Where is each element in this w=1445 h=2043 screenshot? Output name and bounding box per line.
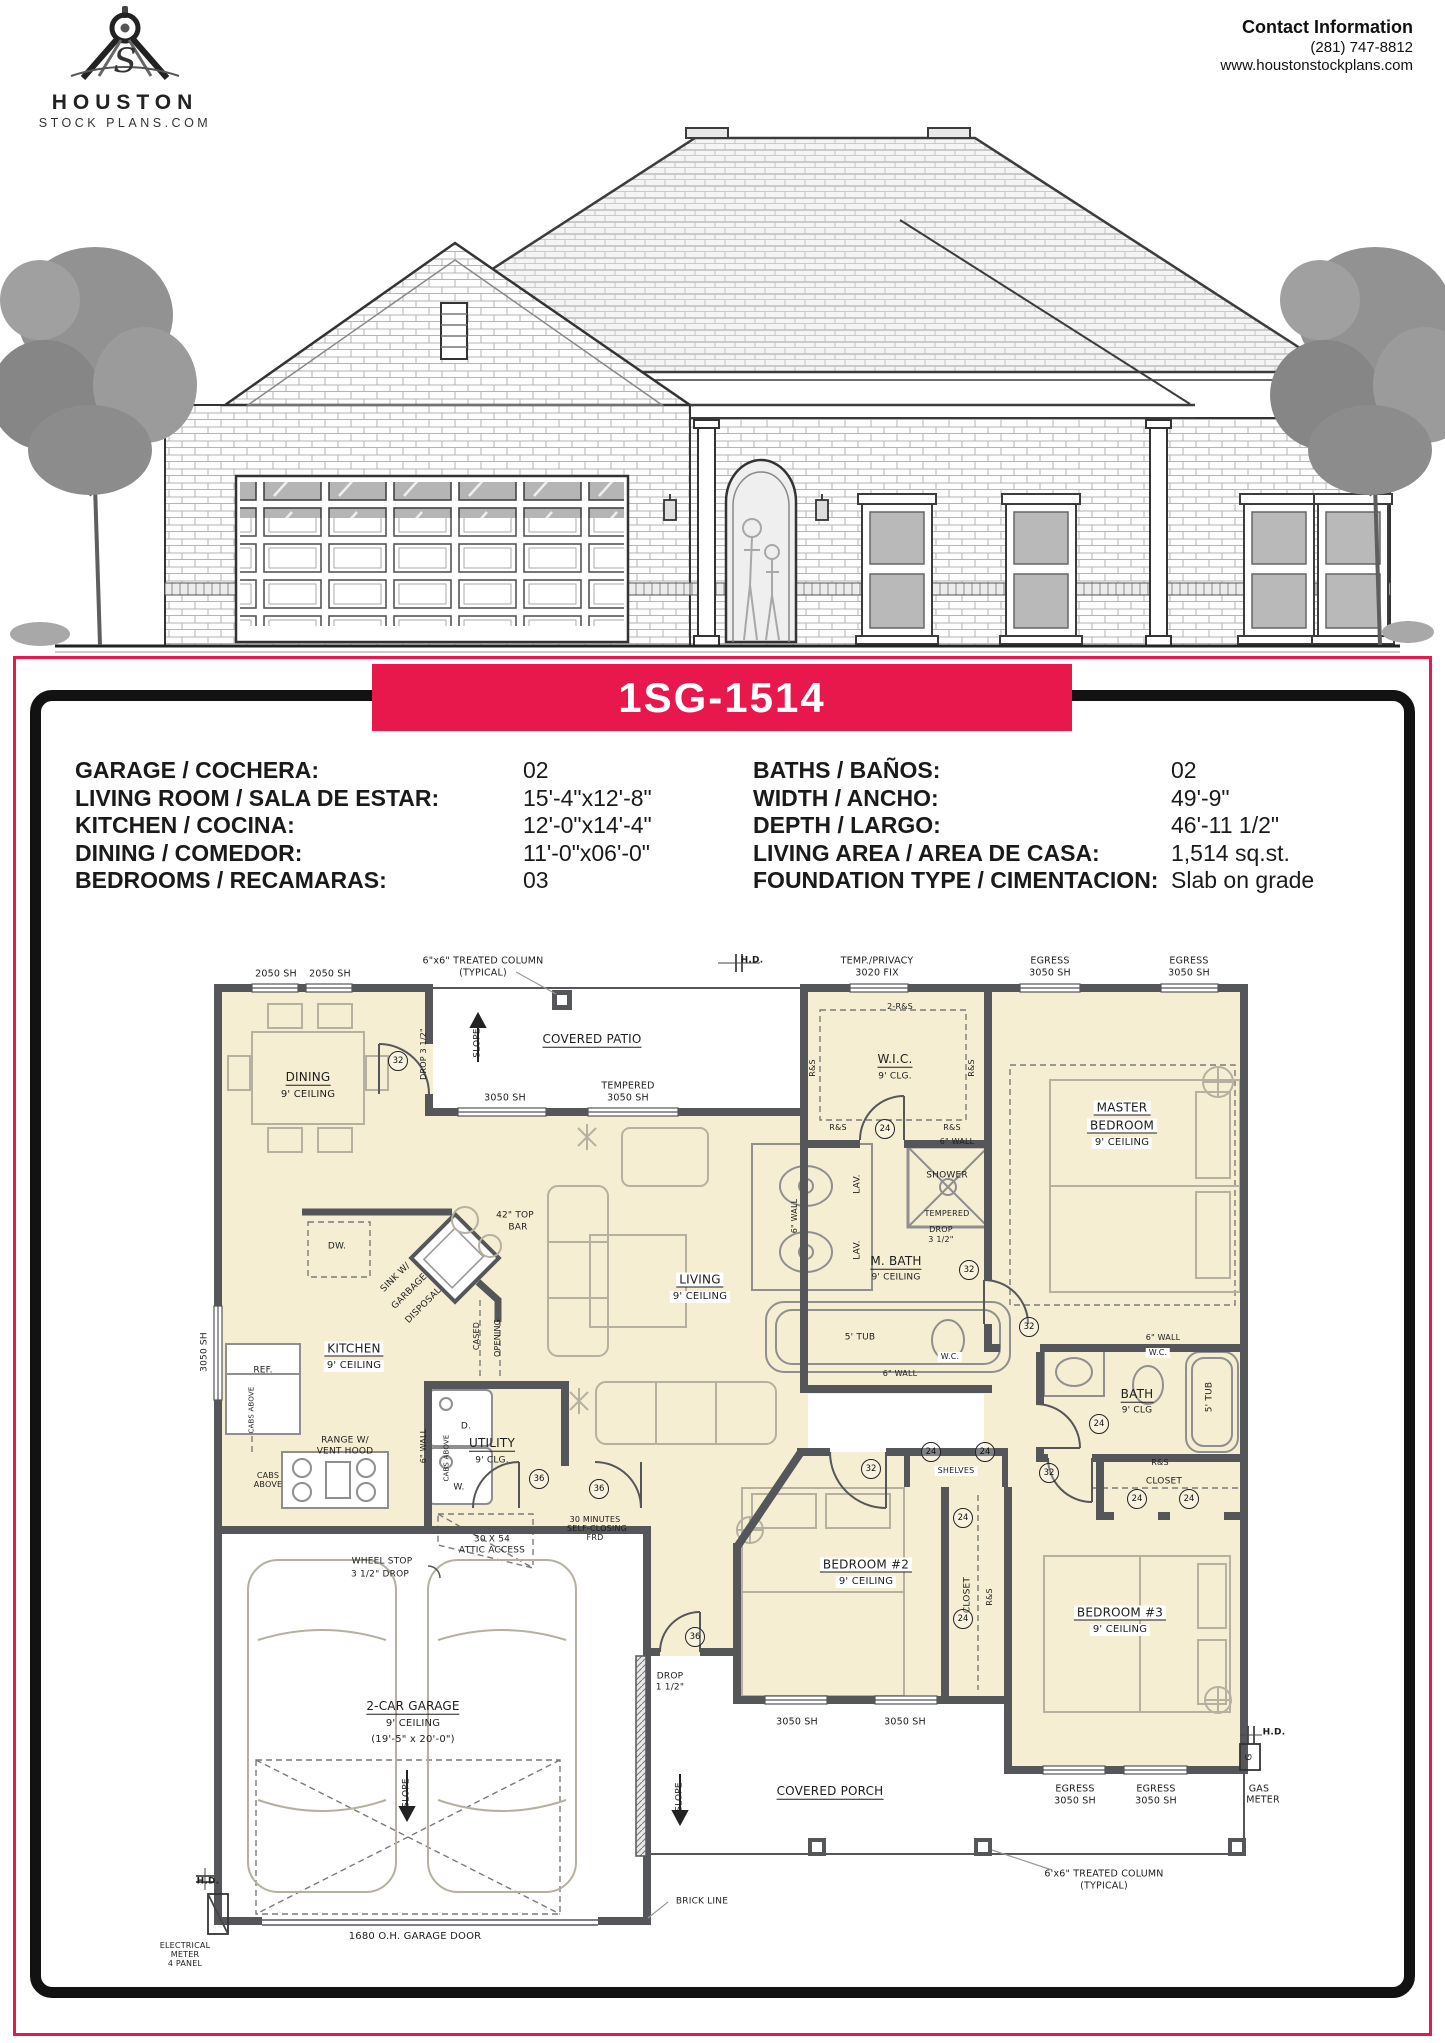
spec-label: LIVING AREA / AREA DE CASA: <box>753 840 1171 868</box>
spec-label: BATHS / BAÑOS: <box>753 757 1171 785</box>
spec-label: LIVING ROOM / SALA DE ESTAR: <box>75 785 523 813</box>
spec-row: BATHS / BAÑOS:02 <box>753 757 1373 785</box>
spec-label: BEDROOMS / RECAMARAS: <box>75 867 523 895</box>
specs-column-left: GARAGE / COCHERA:02LIVING ROOM / SALA DE… <box>75 757 735 895</box>
spec-value: 12'-0"x14'-4" <box>523 812 652 840</box>
spec-row: BEDROOMS / RECAMARAS:03 <box>75 867 735 895</box>
spec-row: LIVING ROOM / SALA DE ESTAR:15'-4"x12'-8… <box>75 785 735 813</box>
spec-row: WIDTH / ANCHO:49'-9" <box>753 785 1373 813</box>
specs-column-right: BATHS / BAÑOS:02WIDTH / ANCHO:49'-9"DEPT… <box>753 757 1373 895</box>
spec-row: DINING / COMEDOR:11'-0"x06'-0" <box>75 840 735 868</box>
spec-row: FOUNDATION TYPE / CIMENTACION:Slab on gr… <box>753 867 1373 895</box>
plan-number: 1SG-1514 <box>618 674 825 722</box>
spec-label: DEPTH / LARGO: <box>753 812 1171 840</box>
spec-label: FOUNDATION TYPE / CIMENTACION: <box>753 867 1171 895</box>
spec-value: 1,514 sq.st. <box>1171 840 1290 868</box>
spec-value: 03 <box>523 867 549 895</box>
spec-label: WIDTH / ANCHO: <box>753 785 1171 813</box>
spec-value: 15'-4"x12'-8" <box>523 785 652 813</box>
spec-label: DINING / COMEDOR: <box>75 840 523 868</box>
spec-value: 11'-0"x06'-0" <box>523 840 650 868</box>
plan-sheet-page: S HOUSTON STOCK PLANS.COM Contact Inform… <box>0 0 1445 2043</box>
spec-value: 02 <box>523 757 549 785</box>
floor-plan-drawing <box>196 954 1262 1934</box>
architectural-drawing <box>0 0 1445 2043</box>
spec-row: DEPTH / LARGO:46'-11 1/2" <box>753 812 1373 840</box>
spec-label: KITCHEN / COCINA: <box>75 812 523 840</box>
spec-label: GARAGE / COCHERA: <box>75 757 523 785</box>
front-elevation-drawing <box>0 128 1445 652</box>
spec-value: 46'-11 1/2" <box>1171 812 1279 840</box>
spec-row: KITCHEN / COCINA:12'-0"x14'-4" <box>75 812 735 840</box>
spec-row: GARAGE / COCHERA:02 <box>75 757 735 785</box>
spec-value: 49'-9" <box>1171 785 1230 813</box>
spec-value: 02 <box>1171 757 1197 785</box>
plan-number-banner: 1SG-1514 <box>372 664 1072 731</box>
spec-row: LIVING AREA / AREA DE CASA:1,514 sq.st. <box>753 840 1373 868</box>
spec-value: Slab on grade <box>1171 867 1314 895</box>
